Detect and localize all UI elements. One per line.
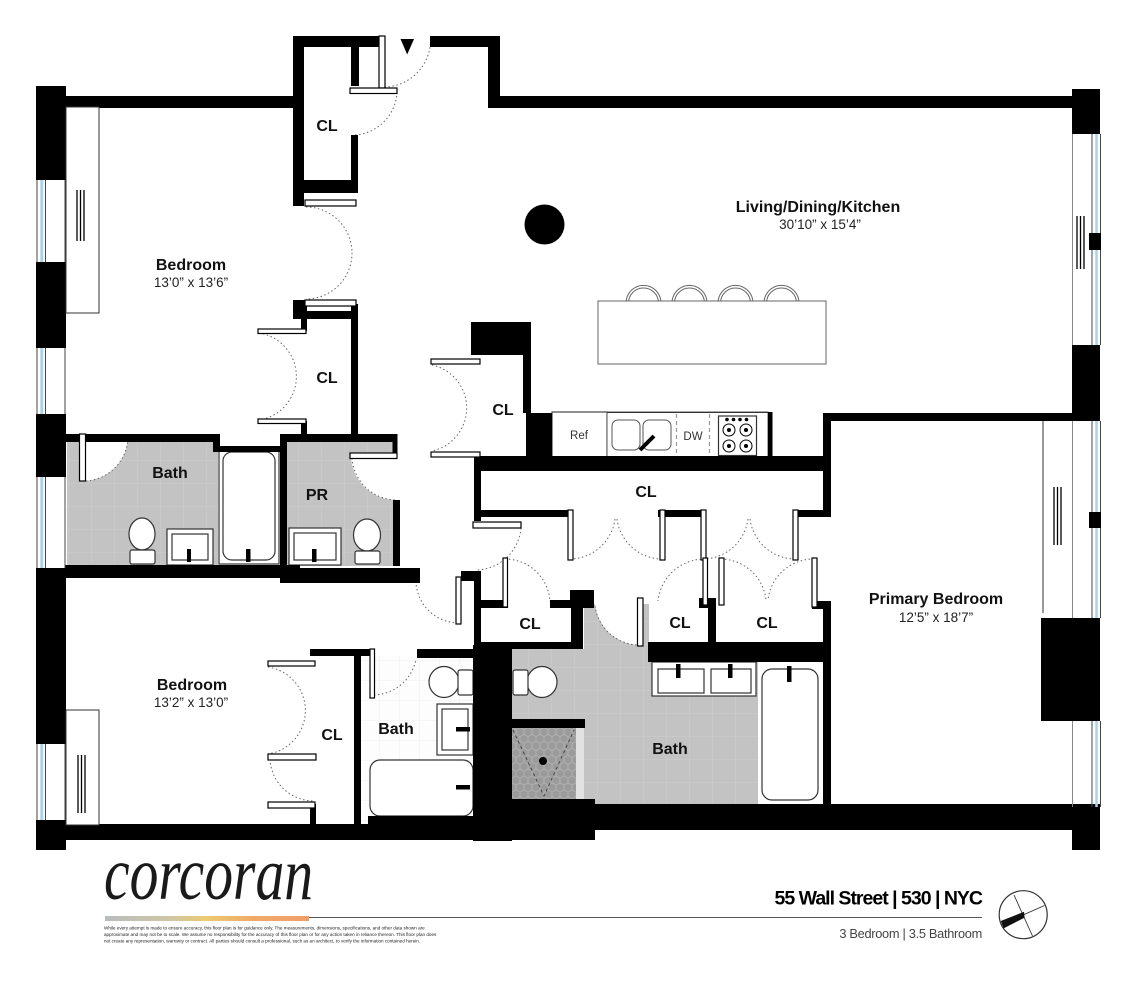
svg-text:not create any representation,: not create any representation, warranty …: [104, 939, 420, 944]
svg-text:CL: CL: [321, 727, 343, 744]
svg-text:Bedroom: Bedroom: [157, 677, 227, 694]
svg-text:While every attempt is made to: While every attempt is made to ensure ac…: [104, 926, 425, 931]
svg-text:CL: CL: [316, 370, 338, 387]
svg-text:Bath: Bath: [378, 721, 414, 738]
svg-text:Bath: Bath: [652, 741, 688, 758]
svg-text:55 Wall Street | 530 | NYC: 55 Wall Street | 530 | NYC: [775, 888, 983, 910]
svg-text:approximate and may not be to: approximate and may not be to scale. We …: [104, 932, 437, 937]
svg-text:CL: CL: [756, 615, 778, 632]
svg-text:Ref: Ref: [570, 430, 589, 442]
svg-text:13’0” x 13’6”: 13’0” x 13’6”: [154, 275, 228, 290]
svg-text:3 Bedroom | 3.5 Bathroom: 3 Bedroom | 3.5 Bathroom: [839, 926, 982, 941]
svg-text:30’10” x 15’4”: 30’10” x 15’4”: [779, 217, 861, 232]
svg-text:Bedroom: Bedroom: [156, 257, 226, 274]
svg-text:CL: CL: [492, 402, 514, 419]
svg-text:CL: CL: [669, 615, 691, 632]
svg-text:12’5” x 18’7”: 12’5” x 18’7”: [899, 610, 973, 625]
svg-text:DW: DW: [683, 431, 702, 443]
svg-text:PR: PR: [306, 487, 329, 504]
svg-text:Living/Dining/Kitchen: Living/Dining/Kitchen: [736, 199, 900, 216]
svg-text:13’2” x 13’0”: 13’2” x 13’0”: [154, 695, 228, 710]
svg-text:CL: CL: [635, 484, 657, 501]
svg-text:corcoran: corcoran: [104, 833, 313, 916]
svg-text:CL: CL: [316, 118, 338, 135]
svg-text:CL: CL: [519, 616, 541, 633]
svg-text:Primary Bedroom: Primary Bedroom: [869, 591, 1003, 608]
svg-text:Bath: Bath: [152, 465, 188, 482]
